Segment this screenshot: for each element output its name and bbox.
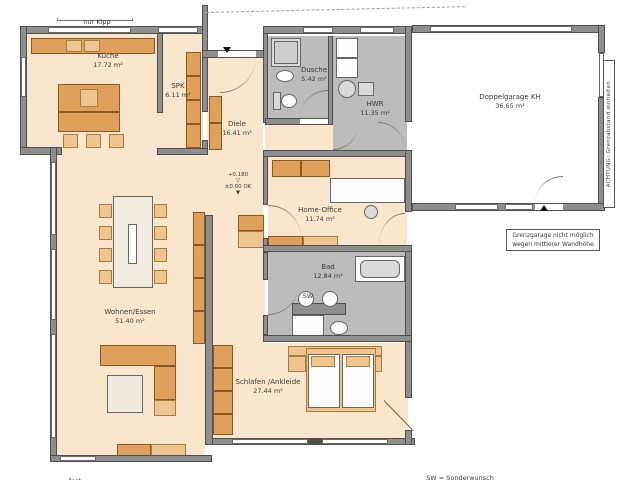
room-label-dusche: Dusche 5.42 m² — [283, 66, 345, 84]
grenzgarage-note: Grenzgarage nicht möglich wegen mittlere… — [506, 229, 600, 251]
kitchen-cooktop — [80, 89, 98, 107]
nur-kipp-label: nur Kipp — [63, 9, 131, 30]
pillow — [346, 356, 370, 367]
kitchen-appliance — [66, 40, 82, 52]
sofa-chaise — [154, 400, 176, 416]
room-label-hwr: HWR 11.35 m² — [343, 100, 407, 118]
wall — [157, 33, 163, 113]
room-label-diele: Diele 16.41 m² — [205, 120, 269, 138]
room-label-spk: SPK 6.11 m² — [156, 82, 200, 100]
window-garage-top — [430, 26, 572, 32]
room-garage-floor — [412, 33, 598, 205]
shelf-cabinet — [193, 245, 205, 278]
hall-wardrobe — [209, 96, 222, 123]
office-closet — [301, 160, 330, 177]
kitchen-bar — [58, 112, 120, 132]
shower-tray — [274, 41, 298, 64]
sw-marker-label: SW — [294, 283, 322, 304]
window-fest — [60, 456, 96, 461]
hall-cabinet — [238, 231, 264, 248]
window-hwr — [360, 27, 394, 33]
wall — [263, 150, 268, 205]
window-wohnen — [51, 162, 56, 235]
bar-stool — [63, 134, 78, 148]
wall — [205, 215, 213, 445]
window-wohnen — [51, 334, 56, 438]
desk — [330, 178, 405, 203]
wall — [263, 335, 412, 342]
wardrobe — [213, 414, 233, 435]
house-right-wall — [405, 150, 412, 212]
shelf-cabinet — [193, 212, 205, 245]
office-closet — [272, 160, 301, 177]
washing-machine — [336, 38, 358, 58]
bathtub-basin — [360, 260, 400, 278]
dining-chair — [99, 226, 112, 240]
window-mullion — [308, 438, 322, 445]
achtung-note: ACHTUNG: Grenzabstand einhalten — [603, 60, 615, 208]
level-marker: +0.180 ▽ ±0.00 OK ▼ — [214, 172, 262, 196]
window-garage-bottom — [455, 204, 498, 210]
room-label-home-office: Home-Office 11.74 m² — [278, 206, 362, 224]
legend-label: SW = Sonderwunsch — [398, 465, 522, 480]
utility-table — [358, 82, 374, 96]
vanity-sink — [322, 291, 338, 307]
pillow — [311, 356, 335, 367]
house-right-wall — [405, 245, 412, 398]
entrance-marker — [223, 47, 231, 53]
nightstand — [288, 356, 306, 372]
dining-chair — [154, 204, 167, 218]
pantry-cabinet — [186, 52, 201, 76]
wall — [263, 315, 268, 335]
dining-table-runner — [128, 224, 137, 264]
wall — [263, 252, 268, 280]
window-schlafen — [322, 439, 388, 444]
toilet — [330, 321, 348, 335]
wardrobe — [213, 345, 233, 368]
sofa — [154, 366, 176, 400]
bar-stool — [86, 134, 101, 148]
toilet — [281, 94, 297, 108]
coffee-table — [107, 375, 143, 413]
ankleide-corridor-floor — [213, 250, 265, 345]
kitchen-appliance — [84, 40, 100, 52]
window-garage-bottom — [505, 204, 533, 210]
window-dusche — [303, 27, 333, 33]
room-label-garage: Doppelgarage KH 36.65 m² — [455, 93, 565, 111]
dining-chair — [99, 248, 112, 262]
wall — [263, 245, 412, 252]
sofa — [100, 345, 176, 366]
wall — [157, 148, 208, 155]
garage-entrance-marker — [540, 205, 548, 211]
wall — [263, 26, 268, 123]
dining-chair — [99, 204, 112, 218]
window-schlafen — [232, 439, 308, 444]
dining-chair — [154, 226, 167, 240]
walk-in-shower — [292, 315, 324, 337]
dining-chair — [154, 270, 167, 284]
dining-chair — [154, 248, 167, 262]
pantry-cabinet — [186, 124, 201, 148]
shelf-cabinet — [193, 278, 205, 311]
bar-stool — [109, 134, 124, 148]
room-label-bad: Bad 12.84 m² — [296, 263, 360, 281]
roof-overhang-line — [206, 6, 465, 13]
window-kueche-left — [21, 57, 26, 97]
garage-wall — [598, 25, 605, 53]
hall-floor — [265, 123, 333, 152]
window-wohnen — [51, 249, 56, 320]
room-label-schlafen: Schlafen /Ankleide 27.44 m² — [216, 378, 320, 396]
wall — [263, 150, 412, 157]
toilet-tank — [273, 92, 281, 110]
hall-cabinet — [238, 215, 264, 231]
dusche-door-opening — [300, 119, 328, 124]
house-right-wall — [405, 430, 412, 445]
pantry-cabinet — [186, 100, 201, 124]
room-label-kueche: Küche 17.72 m² — [66, 52, 150, 70]
fest-label: fest — [58, 468, 92, 480]
shelf-cabinet — [193, 311, 205, 344]
dining-chair — [99, 270, 112, 284]
room-label-wohnen: Wohnen/Essen 51.40 m² — [85, 308, 175, 326]
office-chair — [364, 205, 378, 219]
floor-plan: nur Kipp Küche 17.72 m² SPK 6.11 m² Diel… — [0, 0, 640, 480]
window-spk-top — [158, 27, 198, 33]
